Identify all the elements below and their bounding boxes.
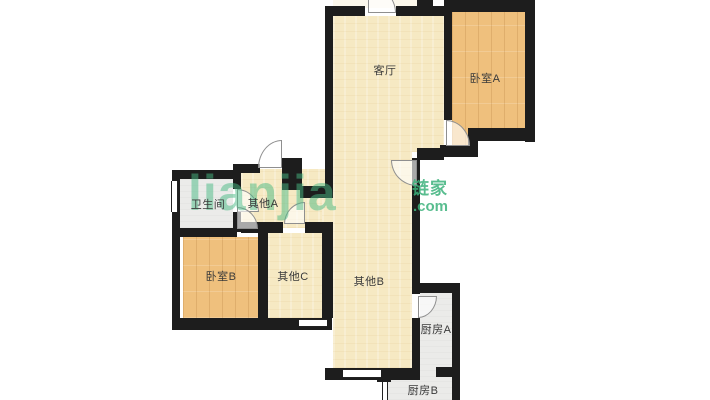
wall: [412, 318, 420, 374]
wall: [525, 0, 535, 142]
living-room-fill: [333, 16, 444, 152]
wall: [417, 0, 433, 8]
wall: [436, 367, 460, 377]
wall: [258, 228, 268, 330]
door-balcony: [368, 0, 396, 13]
lianjia-watermark-brand: 链家: [412, 180, 448, 197]
room-label-bathroom: 卫生间: [191, 196, 226, 212]
window-kitchen-b: [382, 382, 388, 400]
wall: [322, 222, 333, 318]
wall: [452, 283, 460, 400]
room-label-kitchen-b: 厨房B: [408, 382, 439, 398]
door-entry: [258, 140, 282, 168]
wall: [444, 0, 535, 12]
wall: [440, 145, 478, 157]
other-b-fill: [333, 152, 412, 368]
room-label-other-b: 其他B: [354, 273, 385, 289]
window-other-c: [299, 319, 327, 327]
wall: [444, 6, 452, 120]
room-label-bedroom-a: 卧室A: [470, 70, 501, 86]
room-label-other-a: 其他A: [248, 195, 279, 211]
window-other-b: [343, 369, 381, 378]
room-label-kitchen-a: 厨房A: [421, 321, 452, 337]
wall: [172, 228, 237, 237]
wall: [470, 128, 535, 141]
lianjia-watermark-tld: .com: [413, 199, 448, 214]
window-bathroom: [171, 181, 178, 212]
room-label-other-c: 其他C: [277, 268, 308, 284]
room-label-living: 客厅: [374, 62, 397, 78]
floorplan: lianjia 链家 .com 客厅 卧室A 卫生间 其他A 卧室B 其他C 其…: [0, 0, 710, 400]
room-label-bedroom-b: 卧室B: [206, 268, 237, 284]
wall: [417, 148, 444, 160]
